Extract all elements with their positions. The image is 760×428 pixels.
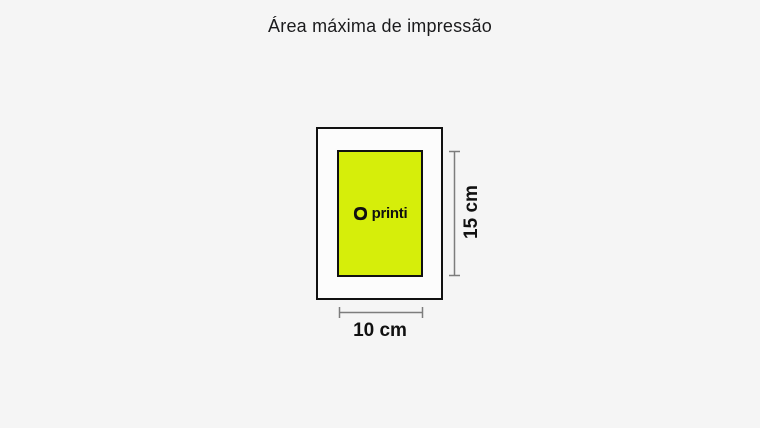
width-dimension-line xyxy=(338,306,424,319)
height-dimension-line xyxy=(448,150,461,277)
printi-logo-text: printi xyxy=(372,205,408,222)
page-title: Área máxima de impressão xyxy=(0,16,760,37)
print-area-diagram: Área máxima de impressão printi 15 cm 10… xyxy=(0,0,760,428)
printi-logo: printi xyxy=(353,205,408,222)
width-dimension-label: 10 cm xyxy=(353,320,407,342)
height-dimension-label: 15 cm xyxy=(461,185,483,239)
printi-logo-icon xyxy=(353,206,368,221)
max-print-area: printi xyxy=(337,150,423,277)
